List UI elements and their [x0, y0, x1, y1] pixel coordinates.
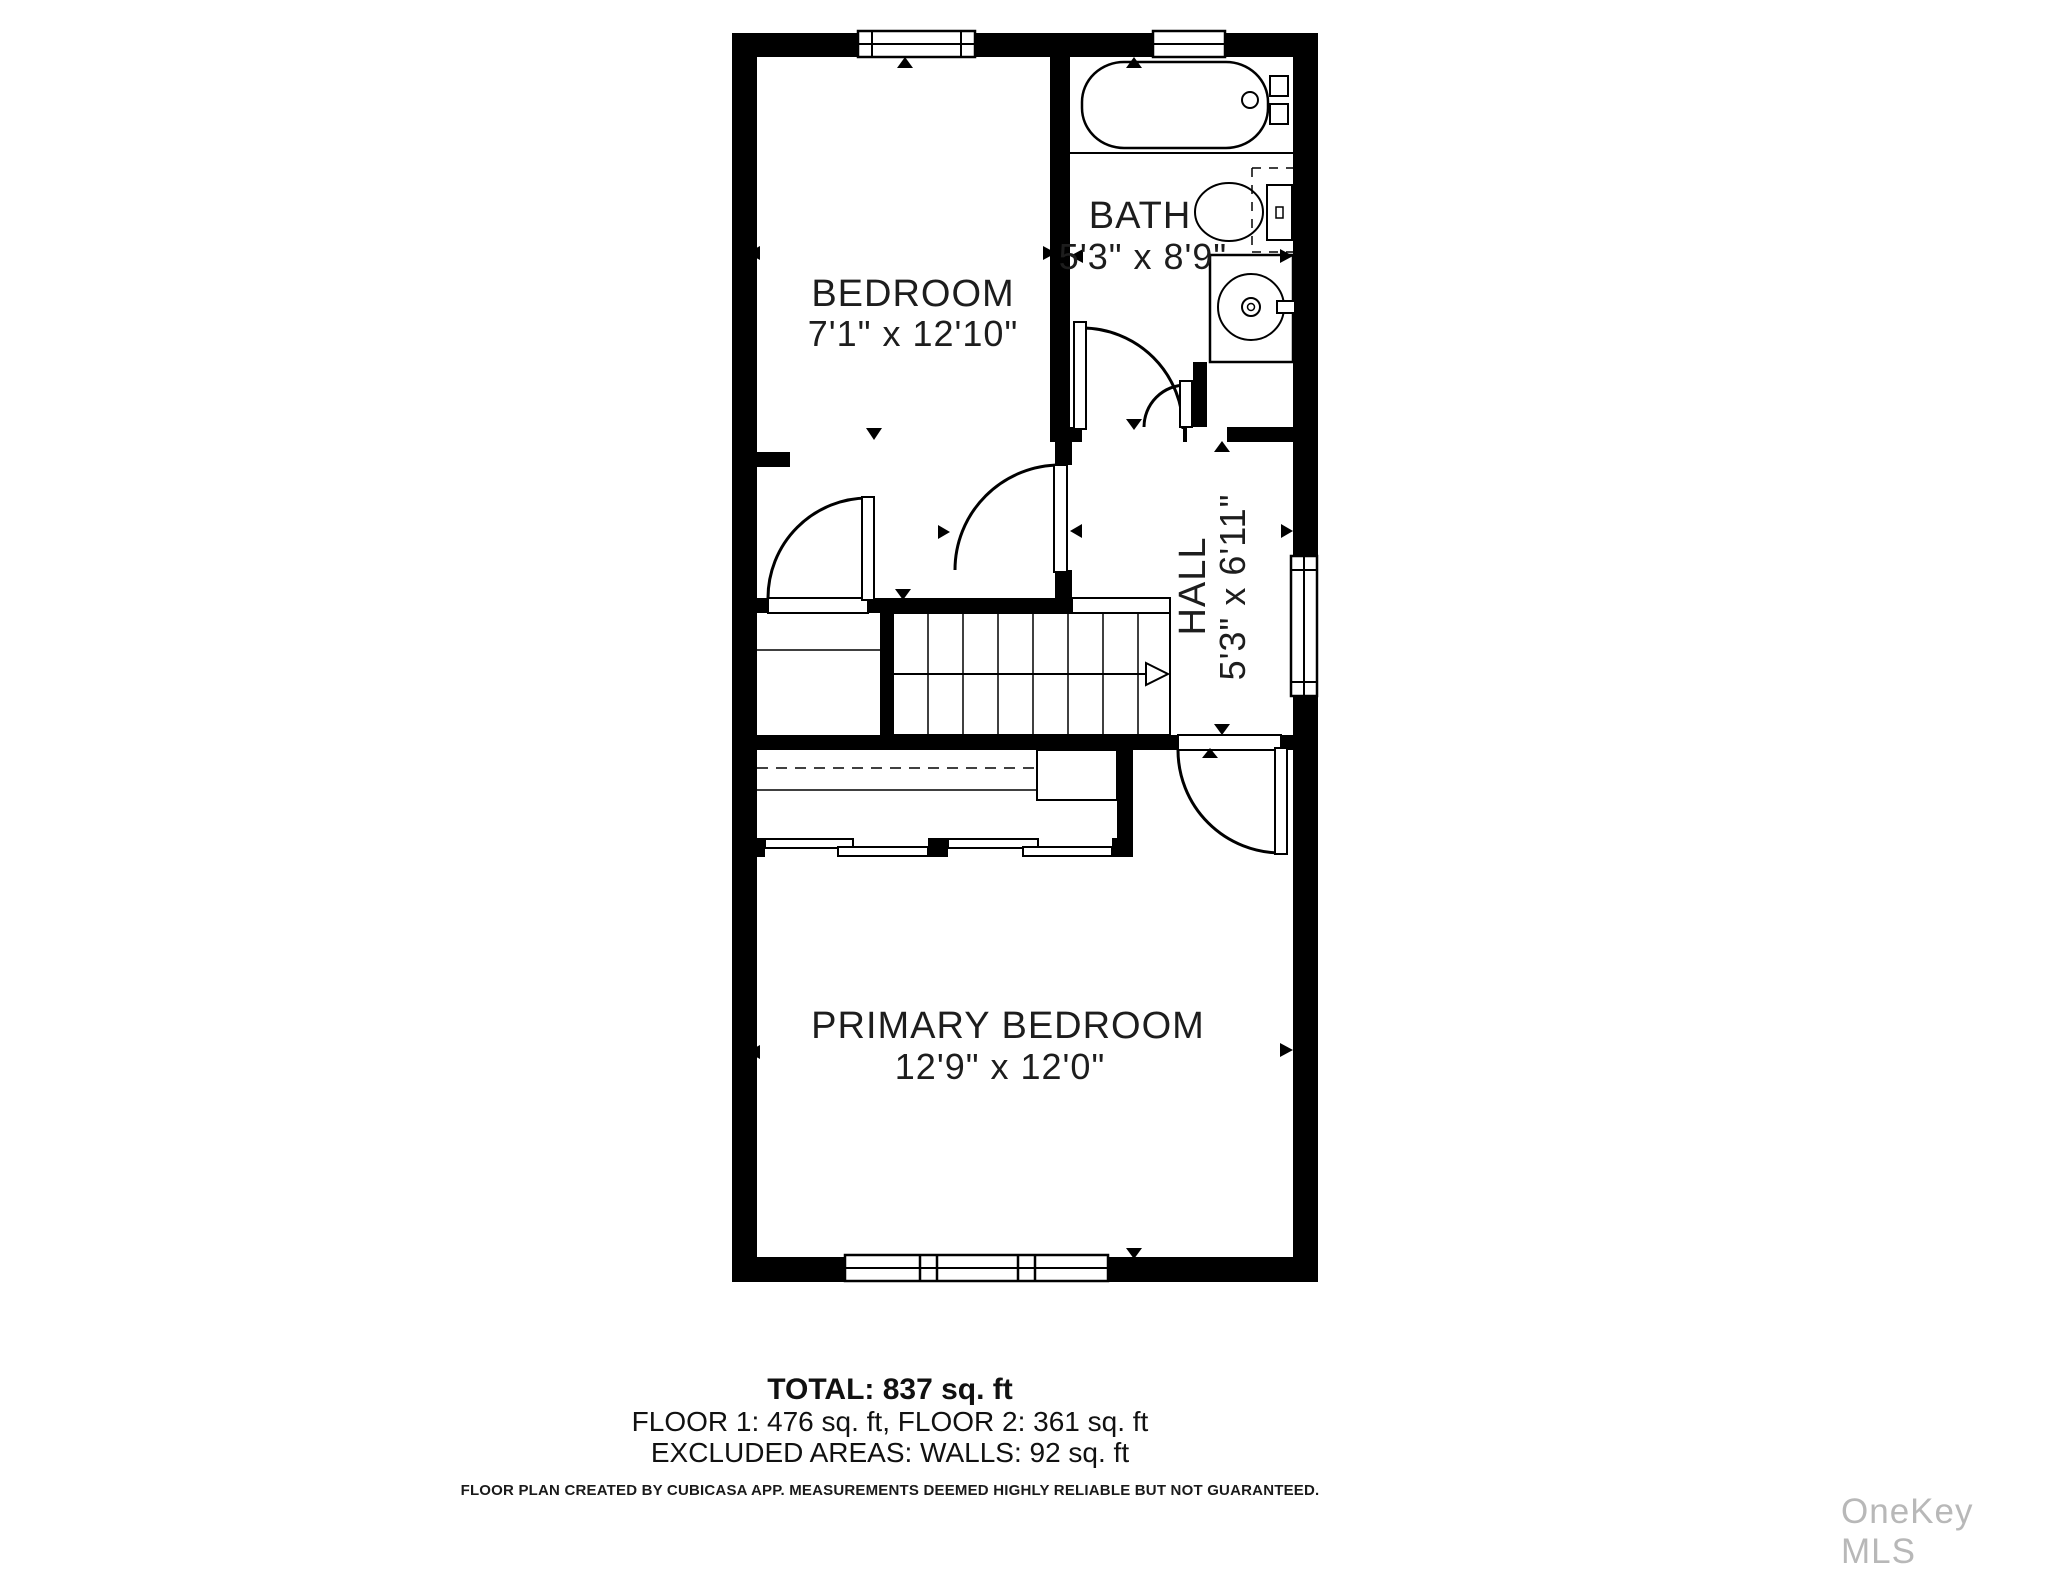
marker-bedroom-window — [897, 57, 913, 68]
label-hall: HALL — [1172, 536, 1214, 635]
door-bath-small — [1144, 381, 1192, 427]
stairs-railing — [1072, 598, 1170, 613]
excluded-areas: EXCLUDED AREAS: WALLS: 92 sq. ft — [440, 1437, 1340, 1468]
floor-plan-svg: BEDROOM 7'1" x 12'10" BATH 5'3" x 8'9" H… — [0, 0, 2048, 1536]
window-hall-right — [1291, 556, 1317, 696]
wall-bedroom-door-stub-bottom — [1055, 570, 1072, 598]
disclaimer: FLOOR PLAN CREATED BY CUBICASA APP. MEAS… — [340, 1482, 1440, 1499]
opening-closet — [768, 598, 868, 613]
label-bath: BATH — [1089, 195, 1192, 237]
marker-hall-bottom — [1214, 724, 1230, 735]
window-primary-bottom — [845, 1255, 1108, 1281]
wall-top — [732, 33, 1318, 57]
wall-bath-south-right — [1227, 427, 1293, 442]
door-primary-bedroom — [1178, 748, 1287, 854]
label-bedroom: BEDROOM — [811, 273, 1014, 315]
label-bedroom-dims: 7'1" x 12'10" — [808, 313, 1018, 354]
wall-closet-north-left — [732, 598, 768, 613]
closet-alcove-box — [1037, 750, 1117, 800]
wall-bedroom-door-stub-top — [1055, 442, 1072, 465]
wall-stairs-left — [880, 613, 893, 735]
door-closet — [768, 497, 874, 600]
label-hall-dims: 5'3" x 6'11" — [1212, 494, 1253, 681]
wall-bath-south-mid — [1183, 427, 1187, 442]
door-bath-main — [1074, 322, 1183, 429]
slider-post-left — [750, 838, 765, 857]
label-primary-bedroom: PRIMARY BEDROOM — [811, 1005, 1205, 1047]
opening-bath-small — [1187, 427, 1227, 442]
opening-bath-main — [1082, 427, 1183, 442]
total-area: TOTAL: 837 sq. ft — [440, 1374, 1340, 1406]
marker-primary-right — [1280, 1043, 1293, 1057]
stairs — [893, 598, 1170, 735]
wall-left — [732, 33, 757, 1282]
marker-hall-top — [1214, 441, 1230, 452]
bathtub — [1082, 62, 1288, 148]
door-bedroom — [955, 465, 1067, 572]
wall-bedroom-south-stub — [732, 452, 790, 467]
slider-post-right — [1112, 838, 1133, 857]
opening-primary — [1178, 735, 1281, 750]
label-primary-bedroom-dims: 12'9" x 12'0" — [895, 1046, 1105, 1087]
wall-closet-north-right — [868, 598, 1072, 613]
marker-landing-right — [938, 525, 950, 539]
window-bedroom-top — [858, 31, 975, 57]
floor-areas: FLOOR 1: 476 sq. ft, FLOOR 2: 361 sq. ft — [440, 1406, 1340, 1437]
slider-post-mid — [928, 838, 948, 857]
label-bath-dims: 5'3" x 8'9" — [1059, 236, 1227, 277]
marker-landing-left — [1070, 524, 1082, 538]
area-summary: TOTAL: 837 sq. ft FLOOR 1: 476 sq. ft, F… — [440, 1374, 1340, 1468]
window-bath-top — [1153, 31, 1225, 57]
wall-closet-east — [1117, 750, 1133, 838]
marker-hall-right — [1281, 524, 1293, 538]
watermark: OneKey MLS — [1841, 1492, 2048, 1572]
wall-bath-hall-nook — [1193, 362, 1207, 427]
marker-bedroom-bottom — [866, 428, 882, 440]
wall-mid-band — [732, 735, 1178, 750]
